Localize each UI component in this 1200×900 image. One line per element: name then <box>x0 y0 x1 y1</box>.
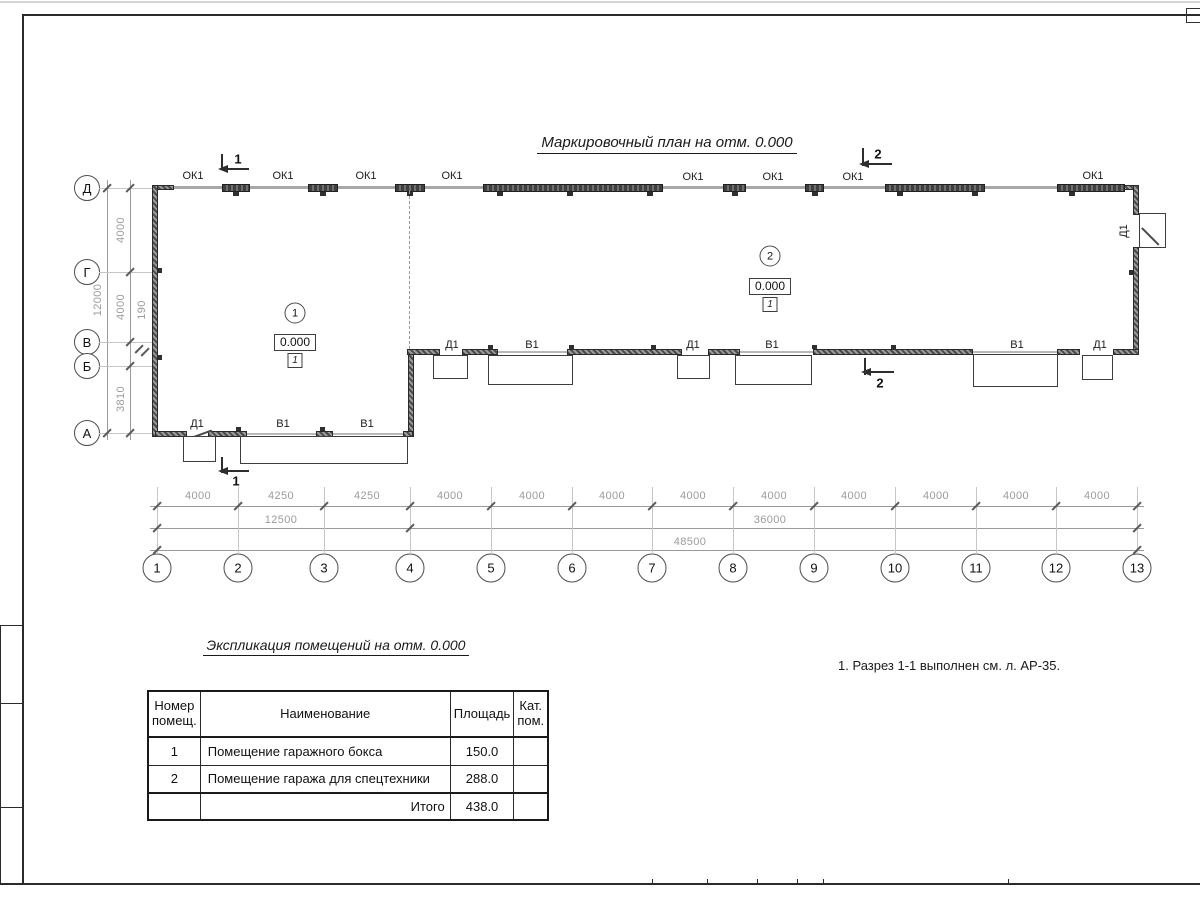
gate-label: В1 <box>276 418 289 430</box>
partition-dashed-line <box>409 191 410 349</box>
cell-area: 288.0 <box>450 765 514 793</box>
section-number: 2 <box>876 376 883 391</box>
window-label: ОК1 <box>682 171 703 183</box>
room-elevation-mark: 0.000 <box>749 278 791 295</box>
window-symbol <box>885 184 985 192</box>
titleblock-tick <box>823 879 824 883</box>
window-mullion-mark <box>497 192 503 196</box>
sheet-top-edge-line <box>0 1 1200 3</box>
drawing-note: 1. Разрез 1-1 выполнен см. л. АР-35. <box>838 658 1060 673</box>
wall-pilaster <box>236 427 241 431</box>
frame-border-top <box>22 14 1200 16</box>
cell-room-name: Помещение гаражного бокса <box>200 737 450 765</box>
grid-bubble-col: 8 <box>719 554 748 583</box>
plan-title-text: Маркировочный план на отм. 0.000 <box>537 134 796 154</box>
margin-column-divider <box>0 703 22 704</box>
door-label: Д1 <box>686 339 700 351</box>
header-category: Кат. пом. <box>514 691 548 737</box>
gate-apron <box>735 355 812 385</box>
extension-line <box>410 487 411 554</box>
grid-leader-line <box>99 342 152 343</box>
grid-bubble-col: 3 <box>310 554 339 583</box>
south-wall-segment <box>1113 349 1139 355</box>
extension-line <box>491 487 492 554</box>
grid-bubble-col: 11 <box>962 554 991 583</box>
window-label: ОК1 <box>441 170 462 182</box>
extension-line <box>324 487 325 554</box>
grid-bubble-col: 1 <box>143 554 172 583</box>
window-label: ОК1 <box>355 170 376 182</box>
dim-text: 4000 <box>115 217 127 243</box>
table-row: 2 Помещение гаража для спецтехники 288.0 <box>148 765 548 793</box>
wall-pilaster <box>158 355 162 360</box>
extension-line <box>814 487 815 554</box>
south-wall-segment <box>1057 349 1080 355</box>
grid-bubble-row: В <box>74 329 100 355</box>
margin-column-divider <box>0 625 22 626</box>
cell-total-label: Итого <box>200 793 450 820</box>
gate-opening <box>498 351 567 353</box>
window-mullion-mark <box>1069 192 1075 196</box>
dim-text: 4000 <box>519 490 545 502</box>
cell-empty <box>514 793 548 820</box>
grid-bubble-col: 9 <box>800 554 829 583</box>
gate-label: В1 <box>765 339 778 351</box>
cell-category <box>514 765 548 793</box>
door-porch <box>433 355 468 379</box>
door-label: Д1 <box>445 339 459 351</box>
grid-bubble-col: 7 <box>638 554 667 583</box>
extension-line <box>238 487 239 554</box>
dim-text: 48500 <box>674 536 707 548</box>
window-mullion-mark <box>233 192 239 196</box>
room-elevation-mark: 0.000 <box>274 334 316 351</box>
window-mullion-mark <box>812 192 818 196</box>
section-arrow <box>859 160 869 168</box>
section-arrow <box>218 165 228 173</box>
gate-apron <box>973 354 1058 387</box>
extension-line <box>733 487 734 554</box>
window-label: ОК1 <box>842 171 863 183</box>
margin-column-divider <box>0 807 22 808</box>
wall-pilaster <box>1129 270 1133 275</box>
dim-text: 36000 <box>754 514 787 526</box>
frame-border-bottom <box>0 883 1200 885</box>
window-mullion-mark <box>897 192 903 196</box>
floor-type-mark: 1 <box>288 353 303 368</box>
wall-pilaster <box>891 345 896 349</box>
floor-type-mark: 1 <box>763 297 778 312</box>
frame-corner-box <box>1186 8 1200 23</box>
dim-text: 12500 <box>265 514 298 526</box>
window-symbol <box>222 184 250 192</box>
door-label: Д1 <box>1093 339 1107 351</box>
step-wall <box>408 349 414 437</box>
grid-leader-line <box>99 272 152 273</box>
table-header-row: Номер помещ. Наименование Площадь Кат. п… <box>148 691 548 737</box>
gate-opening <box>973 351 1057 353</box>
grid-bubble-row: Б <box>74 353 100 379</box>
grid-bubble-col: 10 <box>881 554 910 583</box>
grid-bubble-row: А <box>74 420 100 446</box>
dim-text: 4000 <box>1003 490 1029 502</box>
door-label: Д1 <box>1118 224 1130 238</box>
dim-text: 4000 <box>761 490 787 502</box>
dim-text: 12000 <box>92 284 104 317</box>
window-label: ОК1 <box>1082 170 1103 182</box>
window-mullion-mark <box>567 192 573 196</box>
header-room-name: Наименование <box>200 691 450 737</box>
grid-leader-line <box>99 366 152 367</box>
window-symbol <box>308 184 338 192</box>
south-wall-segment <box>813 349 973 355</box>
header-area: Площадь <box>450 691 514 737</box>
wall-pilaster <box>812 345 817 349</box>
window-mullion-mark <box>320 192 326 196</box>
extension-line <box>976 487 977 554</box>
extension-line <box>1137 487 1138 554</box>
titleblock-tick <box>757 879 758 883</box>
extension-line <box>895 487 896 554</box>
schedule-title: Экспликация помещений на отм. 0.000 <box>186 637 486 653</box>
grid-bubble-col: 12 <box>1042 554 1071 583</box>
door-label: Д1 <box>190 418 204 430</box>
wall-pilaster <box>158 268 162 273</box>
table-row: 1 Помещение гаражного бокса 150.0 <box>148 737 548 765</box>
window-label: ОК1 <box>762 171 783 183</box>
wall-pilaster <box>488 345 493 349</box>
window-symbol <box>483 184 663 192</box>
dim-text: 4000 <box>437 490 463 502</box>
margin-column-edge <box>0 625 1 884</box>
plan-title: Маркировочный план на отм. 0.000 <box>467 134 867 151</box>
extension-line <box>572 487 573 554</box>
east-wall <box>1133 247 1139 354</box>
table-total-row: Итого 438.0 <box>148 793 548 820</box>
frame-border-left <box>22 14 24 885</box>
cell-room-number: 1 <box>148 737 200 765</box>
cell-area: 150.0 <box>450 737 514 765</box>
dim-text: 4250 <box>268 490 294 502</box>
dim-text: 3810 <box>115 386 127 412</box>
header-room-number: Номер помещ. <box>148 691 200 737</box>
section-number: 2 <box>874 147 881 162</box>
break-mark <box>141 348 150 357</box>
door-porch <box>677 355 710 379</box>
titleblock-tick <box>652 879 653 883</box>
cell-room-number: 2 <box>148 765 200 793</box>
dim-text: 4000 <box>923 490 949 502</box>
cell-total-area: 438.0 <box>450 793 514 820</box>
dim-line-bottom-intermediate <box>150 528 1144 529</box>
gate-apron <box>240 436 408 464</box>
west-wall <box>152 185 158 437</box>
grid-bubble-row: Г <box>74 259 100 285</box>
grid-bubble-col: 13 <box>1123 554 1152 583</box>
room-schedule-table: Номер помещ. Наименование Площадь Кат. п… <box>147 690 549 821</box>
wall-pilaster <box>569 345 574 349</box>
south-wall-segment <box>567 349 682 355</box>
cell-category <box>514 737 548 765</box>
room-number-bubble: 1 <box>285 303 306 324</box>
wall-pilaster <box>320 427 325 431</box>
dim-text: 4000 <box>599 490 625 502</box>
gate-opening <box>740 351 813 353</box>
window-label: ОК1 <box>272 170 293 182</box>
dim-text: 4000 <box>1084 490 1110 502</box>
gate-label: В1 <box>1010 339 1023 351</box>
dim-text: 4000 <box>841 490 867 502</box>
east-wall <box>1133 185 1139 215</box>
gate-opening <box>333 433 403 435</box>
section-number: 1 <box>234 152 241 167</box>
window-symbol <box>805 184 824 192</box>
section-arrow <box>861 368 871 376</box>
gate-label: В1 <box>360 418 373 430</box>
dim-line-bottom-total <box>150 550 1144 551</box>
grid-bubble-col: 6 <box>558 554 587 583</box>
room-number-bubble: 2 <box>760 246 781 267</box>
gate-apron <box>488 355 573 385</box>
cell-room-name: Помещение гаража для спецтехники <box>200 765 450 793</box>
gate-label: В1 <box>525 339 538 351</box>
window-label: ОК1 <box>182 170 203 182</box>
titleblock-tick <box>797 879 798 883</box>
dim-text: 190 <box>136 300 148 320</box>
door-porch <box>1082 355 1113 380</box>
dim-text: 4000 <box>185 490 211 502</box>
schedule-title-text: Экспликация помещений на отм. 0.000 <box>203 637 470 656</box>
wall-pilaster <box>651 345 656 349</box>
section-arrow <box>218 467 228 475</box>
dim-line-left-total <box>107 180 108 440</box>
drawing-sheet: Маркировочный план на отм. 0.000 ОК1 ОК1… <box>0 0 1200 900</box>
dim-text: 4000 <box>680 490 706 502</box>
dim-line-bottom-spans <box>150 506 1144 507</box>
gate-opening <box>247 433 316 435</box>
window-mullion-mark <box>732 192 738 196</box>
door-porch <box>183 436 216 462</box>
dim-line-left-spans <box>130 180 131 440</box>
extension-line <box>157 487 158 554</box>
extension-line <box>652 487 653 554</box>
grid-bubble-col: 5 <box>477 554 506 583</box>
dim-text: 4000 <box>115 294 127 320</box>
window-mullion-mark <box>407 192 413 196</box>
dim-text: 4250 <box>354 490 380 502</box>
titleblock-tick <box>1008 879 1009 883</box>
window-symbol <box>723 184 746 192</box>
cell-empty <box>148 793 200 820</box>
window-mullion-mark <box>647 192 653 196</box>
window-symbol <box>1057 184 1125 192</box>
titleblock-tick <box>707 879 708 883</box>
grid-bubble-col: 2 <box>224 554 253 583</box>
window-mullion-mark <box>972 192 978 196</box>
extension-line <box>1056 487 1057 554</box>
window-symbol <box>395 184 425 192</box>
grid-bubble-row: Д <box>74 175 100 201</box>
grid-bubble-col: 4 <box>396 554 425 583</box>
